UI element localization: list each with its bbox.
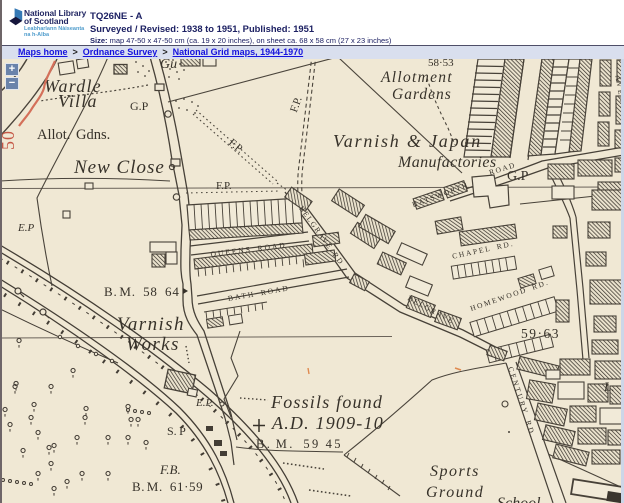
svg-text:G.P: G.P [507, 169, 529, 184]
svg-text:Gu: Gu [160, 59, 177, 72]
svg-text:School: School [497, 495, 541, 503]
svg-text:Varnish: Varnish [117, 314, 185, 335]
svg-text:S. P: S. P [167, 424, 186, 438]
svg-text:Ground: Ground [426, 484, 484, 501]
svg-text:50: 50 [0, 130, 18, 150]
svg-text:Varnish & Japan: Varnish & Japan [333, 131, 482, 151]
svg-text:Fossils found: Fossils found [270, 392, 383, 412]
svg-text:Allotment: Allotment [380, 69, 453, 86]
svg-text:Villa: Villa [58, 91, 98, 111]
svg-text:E.P.: E.P. [195, 397, 214, 409]
svg-text:New Close: New Close [73, 157, 165, 178]
svg-text:F.P.: F.P. [226, 137, 246, 156]
svg-text:Manufactories: Manufactories [397, 154, 497, 171]
svg-text:Works: Works [126, 334, 180, 355]
svg-text:B. M. 59 45: B. M. 59 45 [256, 437, 343, 451]
svg-text:B. M. 61·59: B. M. 61·59 [132, 479, 203, 494]
svg-text:B. M. 58 64: B. M. 58 64 [104, 284, 180, 299]
svg-text:58·53: 58·53 [428, 59, 454, 69]
svg-text:F.P.: F.P. [288, 95, 305, 114]
svg-text:Gdns.: Gdns. [76, 127, 110, 143]
svg-text:F.B.: F.B. [159, 462, 181, 477]
svg-text:Allot.: Allot. [37, 127, 70, 143]
svg-text:BATSWORTH: BATSWORTH [411, 180, 470, 209]
svg-text:F.P.: F.P. [216, 180, 232, 192]
svg-text:L.: L. [603, 379, 614, 394]
svg-text:59·63: 59·63 [521, 326, 560, 341]
svg-text:E.P: E.P [17, 222, 34, 234]
svg-text:Sports: Sports [430, 463, 480, 480]
svg-text:CENTURY RD.: CENTURY RD. [506, 366, 538, 440]
svg-text:Gardens: Gardens [392, 86, 452, 103]
svg-text:G.P: G.P [130, 99, 149, 113]
svg-text:BATH ROAD: BATH ROAD [227, 283, 290, 303]
svg-text:A.D. 1909-10: A.D. 1909-10 [271, 413, 384, 433]
